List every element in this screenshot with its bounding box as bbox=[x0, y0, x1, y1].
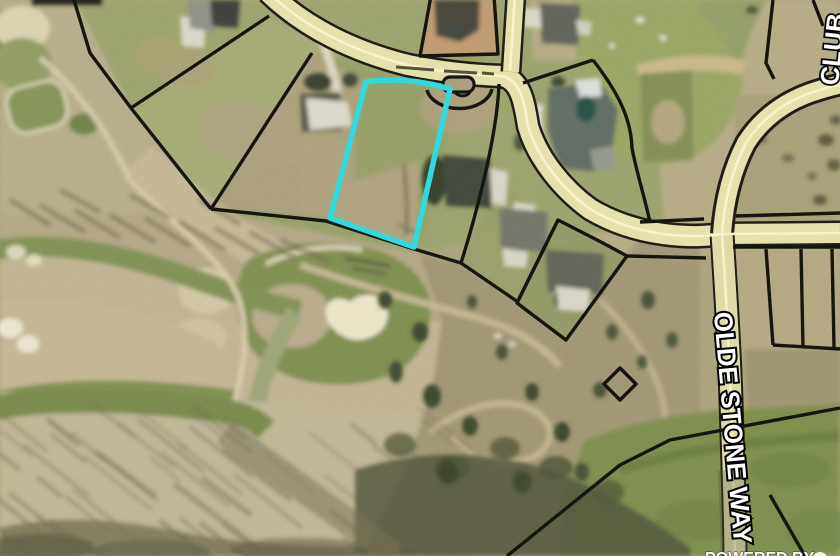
svg-text:POWERED BY: POWERED BY bbox=[705, 550, 815, 556]
